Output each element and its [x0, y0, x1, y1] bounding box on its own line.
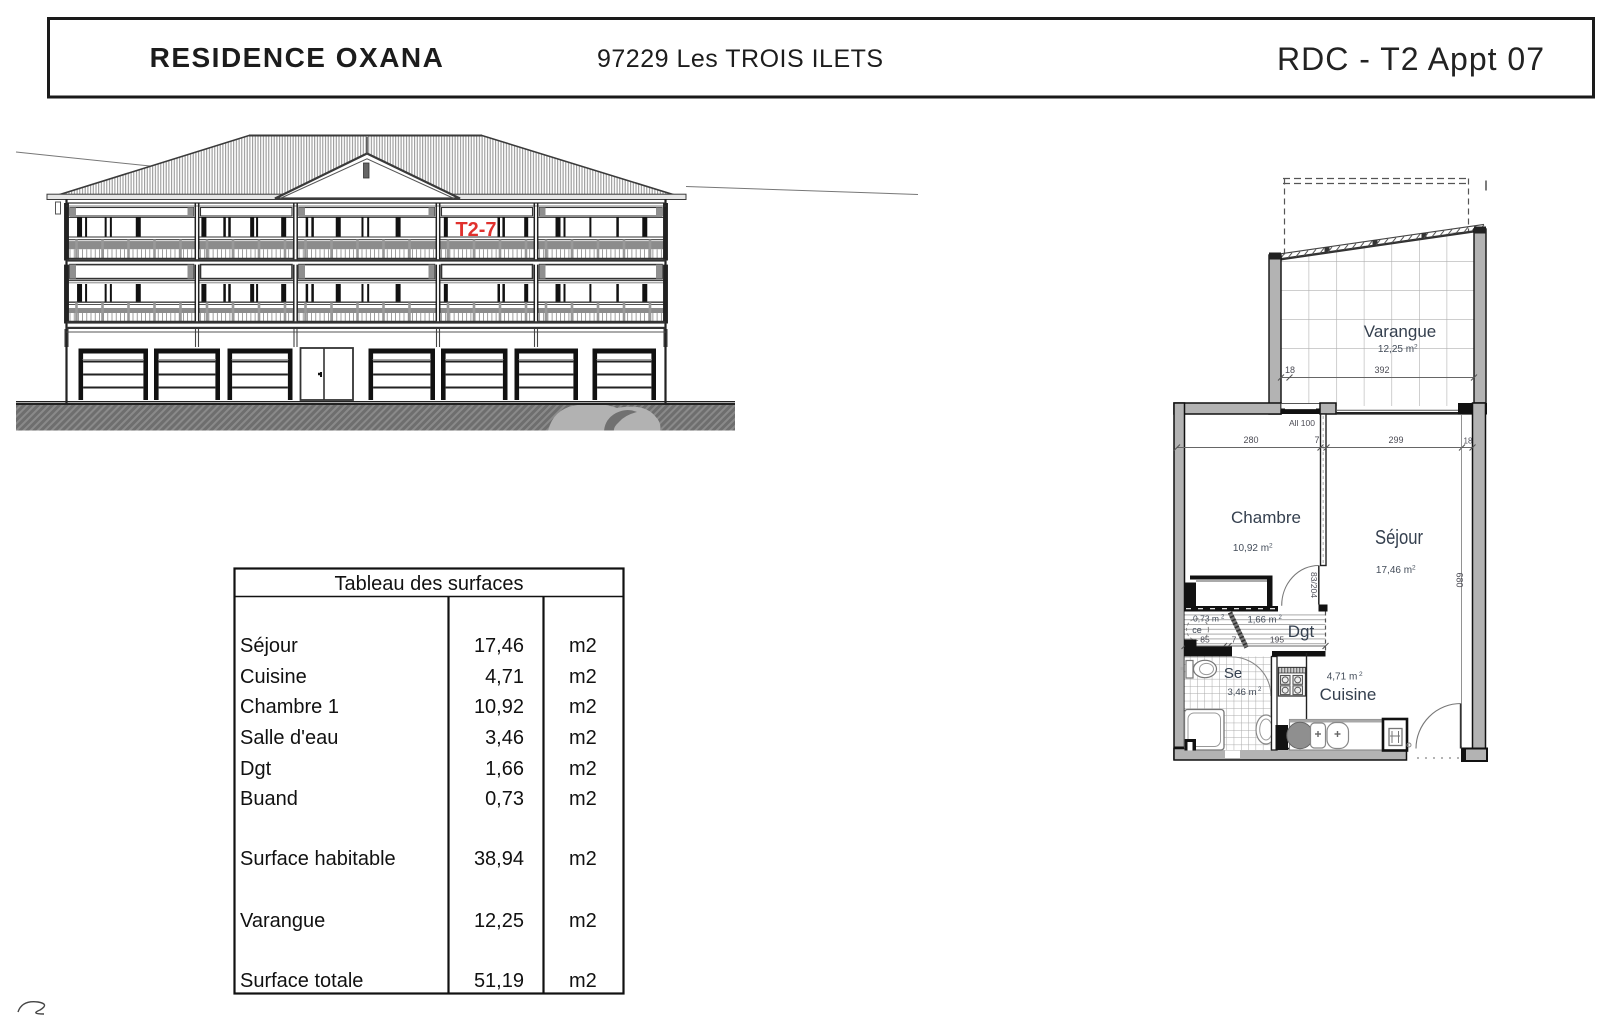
svg-text:All 100: All 100	[1289, 418, 1315, 428]
svg-text:RDC - T2 Appt 07: RDC - T2 Appt 07	[1277, 41, 1545, 77]
svg-text:m2: m2	[569, 696, 597, 718]
svg-text:m2: m2	[569, 910, 597, 932]
svg-text:195: 195	[1270, 635, 1284, 645]
svg-text:10,92 m: 10,92 m	[1233, 543, 1269, 554]
svg-text:Dgt: Dgt	[1288, 622, 1315, 641]
svg-text:4,71 m: 4,71 m	[1327, 672, 1358, 683]
svg-text:Cuisine: Cuisine	[240, 666, 307, 688]
svg-text:2: 2	[1359, 671, 1363, 678]
svg-text:17,46 m: 17,46 m	[1376, 565, 1412, 576]
svg-text:280: 280	[1243, 435, 1258, 445]
svg-text:299: 299	[1388, 435, 1403, 445]
svg-text:Surface totale: Surface totale	[240, 970, 363, 992]
svg-text:83/204: 83/204	[1309, 572, 1319, 598]
svg-text:Tableau des surfaces: Tableau des surfaces	[334, 573, 523, 595]
svg-text:Chambre 1: Chambre 1	[240, 696, 339, 718]
svg-text:Chambre: Chambre	[1231, 508, 1301, 527]
svg-text:0,73: 0,73	[485, 788, 524, 810]
svg-text:38,94: 38,94	[474, 848, 524, 870]
svg-text:7: 7	[1314, 435, 1319, 445]
svg-text:392: 392	[1374, 365, 1389, 375]
svg-text:Dgt: Dgt	[240, 758, 272, 780]
svg-text:Se: Se	[1224, 665, 1242, 682]
svg-text:2: 2	[1269, 543, 1273, 550]
svg-text:m2: m2	[569, 635, 597, 657]
svg-text:7: 7	[1232, 635, 1237, 645]
svg-text:m2: m2	[569, 788, 597, 810]
svg-text:RESIDENCE OXANA: RESIDENCE OXANA	[150, 42, 445, 73]
svg-text:4,71: 4,71	[485, 666, 524, 688]
svg-text:85: 85	[1200, 635, 1210, 645]
svg-text:680: 680	[1455, 572, 1465, 587]
svg-text:m2: m2	[569, 727, 597, 749]
svg-text:3,46: 3,46	[485, 727, 524, 749]
svg-text:m2: m2	[569, 848, 597, 870]
svg-text:Salle d'eau: Salle d'eau	[240, 727, 338, 749]
svg-text:m2: m2	[569, 970, 597, 992]
svg-text:12,25 m: 12,25 m	[1378, 344, 1414, 355]
svg-text:Varangue: Varangue	[1364, 322, 1436, 341]
svg-text:Séjour: Séjour	[1375, 527, 1423, 549]
svg-text:Varangue: Varangue	[240, 910, 325, 932]
svg-text:Cuisine: Cuisine	[1320, 685, 1377, 704]
svg-text:1,66: 1,66	[485, 758, 524, 780]
svg-text:10,92: 10,92	[474, 696, 524, 718]
svg-text:1,66 m: 1,66 m	[1247, 615, 1276, 626]
svg-text:51,19: 51,19	[474, 970, 524, 992]
svg-text:T2-7: T2-7	[456, 219, 497, 241]
svg-text:m2: m2	[569, 758, 597, 780]
svg-text:12,25: 12,25	[474, 910, 524, 932]
svg-text:Buand: Buand	[240, 788, 298, 810]
svg-text:ce: ce	[1192, 625, 1202, 635]
svg-text:97229 Les TROIS ILETS: 97229 Les TROIS ILETS	[597, 45, 884, 73]
svg-text:3,46 m: 3,46 m	[1227, 687, 1256, 698]
svg-text:2: 2	[1412, 565, 1416, 572]
svg-text:Séjour: Séjour	[240, 635, 298, 657]
svg-text:2: 2	[1414, 344, 1418, 351]
svg-text:17,46: 17,46	[474, 635, 524, 657]
svg-text:18: 18	[1464, 437, 1473, 446]
svg-text:18: 18	[1285, 365, 1295, 375]
svg-text:m2: m2	[569, 666, 597, 688]
svg-text:Surface habitable: Surface habitable	[240, 848, 396, 870]
